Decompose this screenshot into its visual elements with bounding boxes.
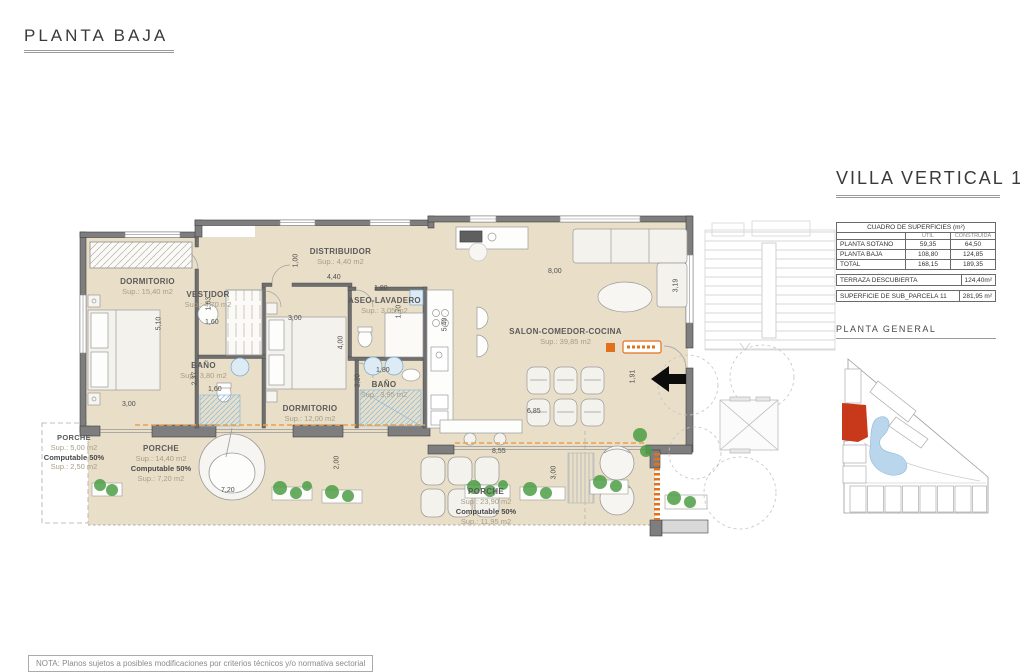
page-title: PLANTA BAJA [24,26,174,53]
planta-general-title: PLANTA GENERAL [836,324,996,339]
dimension-label: 1,00 [292,254,299,268]
row-label: PLANTA SOTANO [837,240,906,250]
table-corner-cell [837,233,906,240]
dimension-label: 1,70 [395,305,402,319]
skylight [720,397,778,453]
row-util: 168,15 [906,260,951,270]
row-construida: 64,50 [951,240,996,250]
dimension-label: 3,19 [672,279,679,293]
row-construida: 189,35 [951,260,996,270]
site-building [845,369,861,403]
dimension-label: 8,55 [492,448,506,455]
site-plots-row [850,486,987,512]
dimension-label: 1,91 [629,370,636,384]
col-construida: CONSTRUIDA [951,233,996,240]
site-plot [843,466,866,483]
site-map [836,345,996,519]
floor-plan-drawing [40,195,840,570]
dimension-label: 8,00 [548,268,562,275]
dimension-label: 1,60 [205,319,219,326]
table-title: CUADRO DE SUPERFICIES (m²) [837,223,996,233]
row-label: PLANTA BAJA [837,250,906,260]
row-util: 108,80 [906,250,951,260]
dimension-label: 2,00 [333,456,340,470]
dimension-label: 4,40 [327,274,341,281]
row-construida: 124,85 [951,250,996,260]
dimension-label: 3,00 [550,466,557,480]
dimension-label: 7,20 [221,487,235,494]
info-panel: VILLA VERTICAL 11 CUADRO DE SUPERFICIES … [836,168,1000,524]
parcela-label: SUPERFICIE DE SUB_PARCELA 11 [837,291,959,301]
dimension-label: 2,37 [191,372,198,386]
parcela-row: SUPERFICIE DE SUB_PARCELA 11 281,95 m² [836,290,996,302]
floor-plan: DORMITORIO Sup.: 15,40 m2 VESTIDOR Sup.:… [40,195,840,570]
dimension-label: 1,80 [374,285,388,292]
row-util: 59,35 [906,240,951,250]
terraza-value: 124,40m² [961,275,995,285]
dimension-label: 3,00 [288,315,302,322]
dimension-label: 1,60 [208,386,222,393]
stairs [705,230,835,350]
bedroom-2-furniture [266,303,346,402]
terraza-label: TERRAZA DESCUBIERTA [837,275,961,285]
note-box: NOTA: Planos sujetos a posibles modifica… [28,655,373,672]
site-plot [843,445,866,463]
table-row: PLANTA SOTANO 59,35 64,50 [837,240,996,250]
dimension-label: 3,00 [122,401,136,408]
surfaces-table: CUADRO DE SUPERFICIES (m²) UTIL CONSTRUI… [836,222,996,270]
dimension-label: 4,00 [337,336,344,350]
terraza-row: TERRAZA DESCUBIERTA 124,40m² [836,274,996,286]
table-row: PLANTA BAJA 108,80 124,85 [837,250,996,260]
highlighted-parcel [842,403,868,442]
parcela-value: 281,95 m² [959,291,995,301]
dimension-label: 2,20 [354,374,361,388]
dimension-label: 1,80 [376,367,390,374]
dimension-label: 5,10 [155,317,162,331]
col-util: UTIL [906,233,951,240]
dimension-label: 5,40 [441,318,448,332]
villa-title: VILLA VERTICAL 11 [836,168,1000,198]
table-row: TOTAL 168,15 189,35 [837,260,996,270]
dimension-label: 1,63 [205,297,212,311]
row-label: TOTAL [837,260,906,270]
dimension-label: 6,85 [527,408,541,415]
